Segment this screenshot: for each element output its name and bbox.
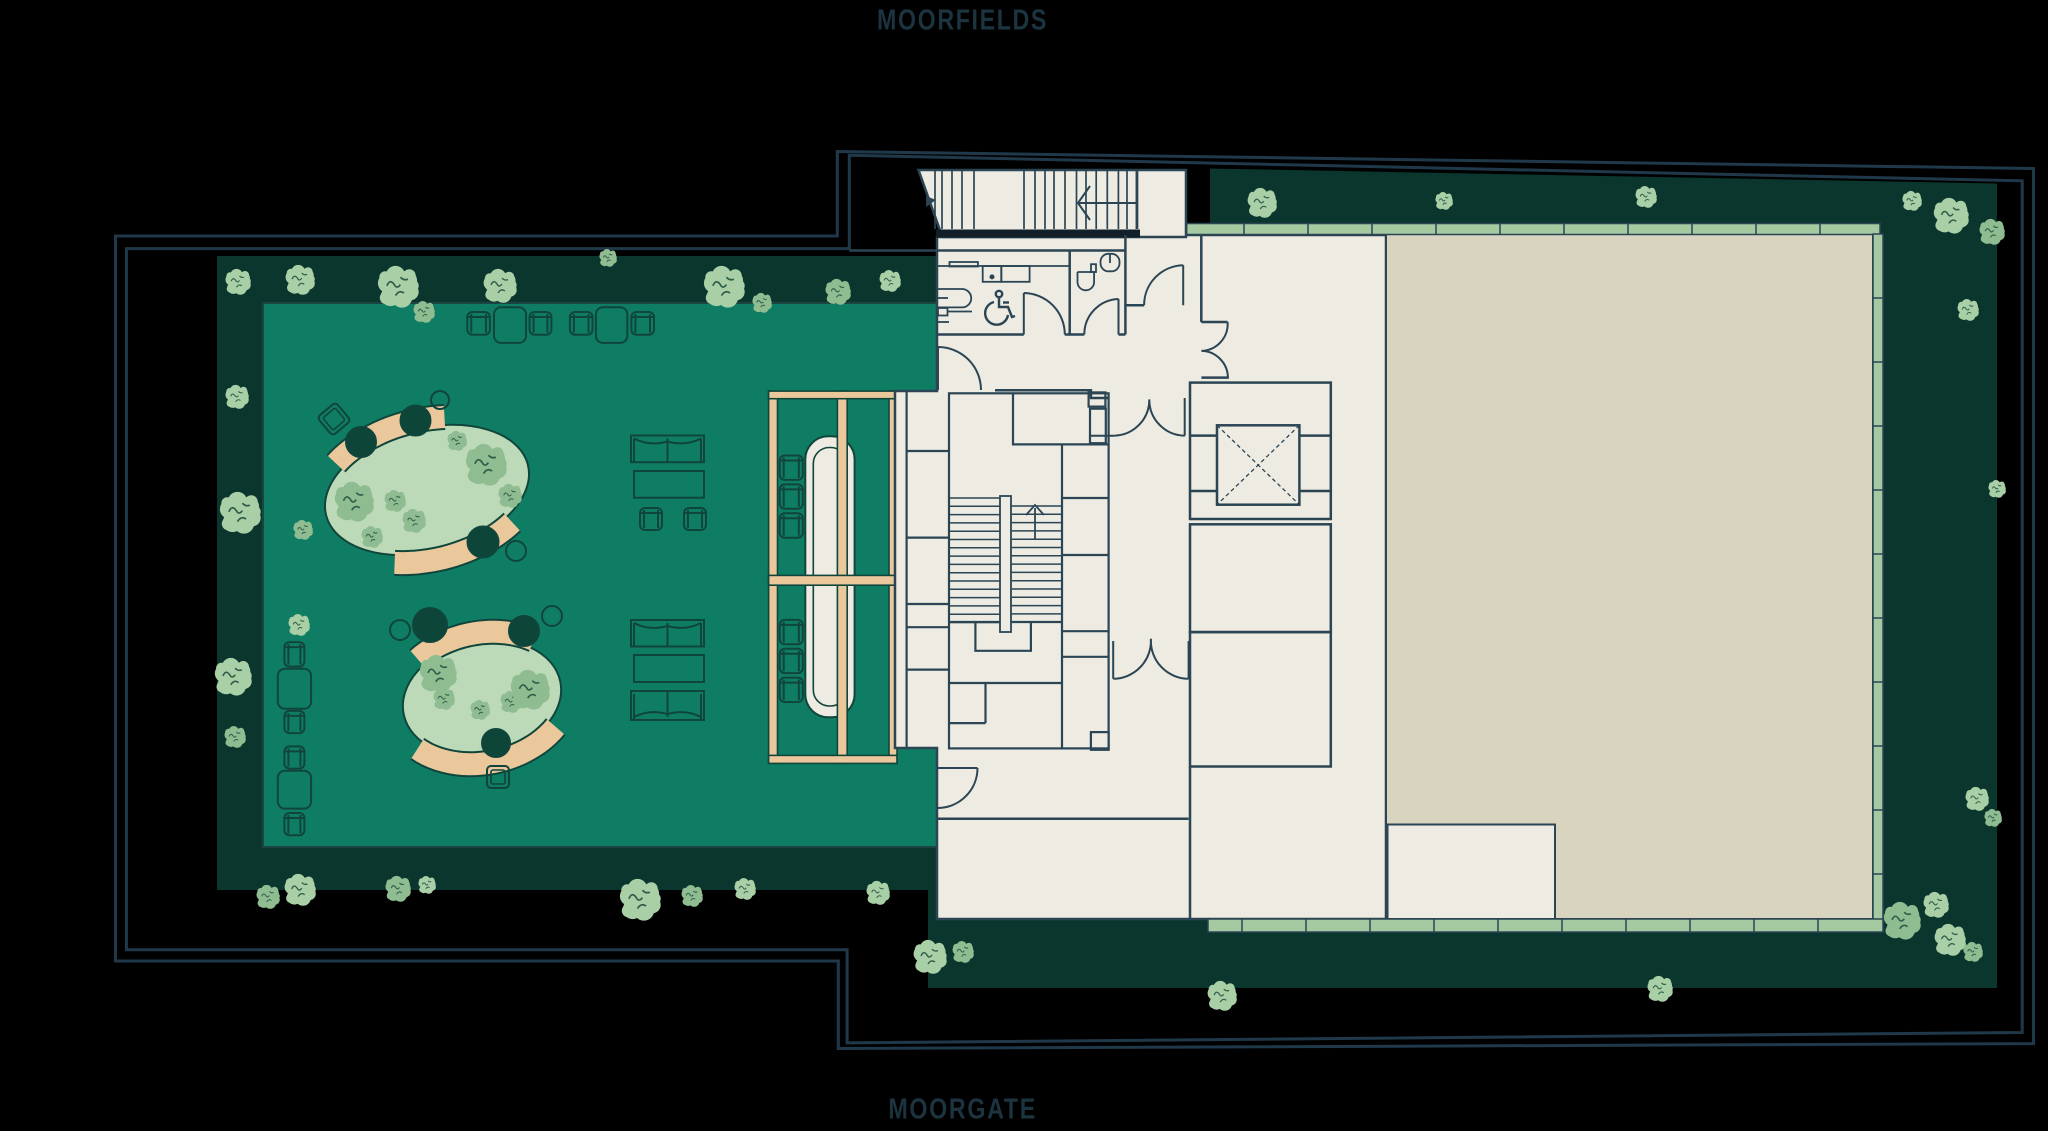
svg-text:MOORFIELDS: MOORFIELDS: [877, 4, 1048, 36]
svg-text:MOORGATE: MOORGATE: [888, 1093, 1037, 1125]
